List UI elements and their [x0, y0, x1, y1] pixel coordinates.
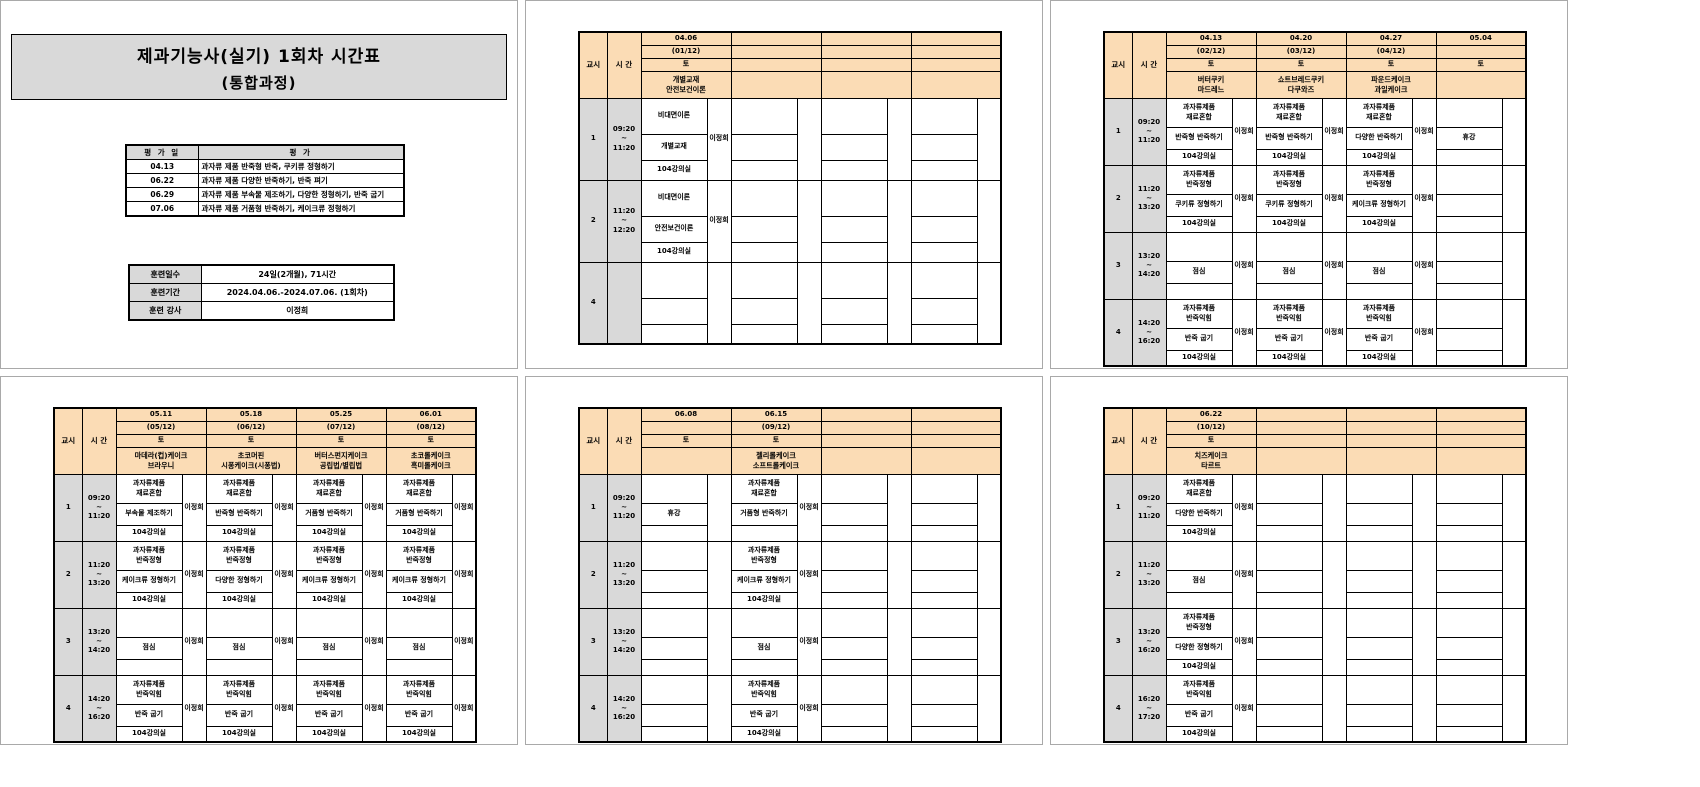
lesson-title-cell [1346, 474, 1412, 503]
instructor-cell [797, 180, 821, 262]
weekday-cell: 토 [1166, 58, 1256, 71]
room-cell [641, 659, 707, 675]
room-cell: 104강의실 [1256, 350, 1322, 366]
instructor-cell [1502, 474, 1526, 541]
subject-cell: 개별교재 안전보건이론 [641, 71, 731, 98]
room-cell [911, 525, 977, 541]
lesson-activity-cell: 반죽 굽기 [1166, 704, 1232, 726]
period-column-header: 교시 [54, 408, 82, 474]
lesson-activity-cell: 다양한 정형하기 [206, 570, 272, 592]
instructor-cell [1502, 165, 1526, 232]
instructor-cell [887, 474, 911, 541]
period-number: 3 [1104, 232, 1132, 299]
lesson-title-cell: 과자류제품 재료혼합 [1256, 98, 1322, 127]
lesson-activity-cell: 반죽 굽기 [296, 704, 362, 726]
date-cell: 05.11 [116, 408, 206, 421]
lesson-activity-cell [911, 134, 977, 160]
lesson-title-cell [1346, 232, 1412, 261]
room-cell [1256, 726, 1322, 742]
period-number: 1 [579, 98, 607, 180]
instructor-cell: 이정희 [452, 474, 476, 541]
lesson-title-cell: 과자류제품 재료혼합 [116, 474, 182, 503]
instructor-cell [887, 180, 911, 262]
instructor-cell: 이정희 [1412, 98, 1436, 165]
lesson-activity-cell [1436, 503, 1502, 525]
lesson-title-cell: 과자류제품 반죽익힘 [1346, 299, 1412, 328]
time-column-header: 시 간 [1132, 32, 1166, 98]
lesson-title-cell [821, 180, 887, 216]
lesson-activity-cell [1346, 570, 1412, 592]
subject-cell: 마데라(컵)케이크 브라우니 [116, 447, 206, 474]
document-title: 제과기능사(실기) 1회차 시간표 [12, 42, 506, 67]
room-cell [821, 324, 887, 344]
room-cell: 104강의실 [1166, 726, 1232, 742]
period-number: 2 [579, 541, 607, 608]
time-range: 13:20 ~ 14:20 [607, 608, 641, 675]
subject-cell [821, 71, 911, 98]
time-range: 09:20 ~ 11:20 [1132, 474, 1166, 541]
lesson-activity-cell: 반죽 굽기 [1346, 328, 1412, 350]
date-cell [1436, 408, 1526, 421]
room-cell [1436, 149, 1502, 165]
lesson-activity-cell: 부속물 제조하기 [116, 503, 182, 525]
instructor-cell: 이정희 [272, 675, 296, 742]
date-cell: 06.22 [1166, 408, 1256, 421]
instructor-cell: 이정희 [272, 541, 296, 608]
lesson-title-cell [1346, 675, 1412, 704]
instructor-cell: 이정희 [452, 541, 476, 608]
instructor-cell: 이정희 [362, 675, 386, 742]
instructor-cell: 이정희 [452, 608, 476, 675]
lesson-activity-cell [911, 298, 977, 324]
subject-cell: 버터스펀지케이크 공립법/별립법 [296, 447, 386, 474]
weekday-cell [1256, 434, 1346, 447]
lesson-title-cell [116, 608, 182, 637]
subject-cell [821, 447, 911, 474]
print-preview-canvas: 제과기능사(실기) 1회차 시간표 (통합과정) 평 가 일평 가04.13과자… [0, 0, 1700, 787]
period-number: 4 [54, 675, 82, 742]
lesson-title-cell: 과자류제품 반죽정형 [1256, 165, 1322, 194]
lesson-activity-cell: 반죽형 반죽하기 [206, 503, 272, 525]
instructor-cell: 이정희 [452, 675, 476, 742]
eval-date: 07.06 [126, 202, 198, 217]
lesson-title-cell [731, 262, 797, 298]
weekday-cell [1346, 434, 1436, 447]
lesson-activity-cell [641, 298, 707, 324]
lesson-title-cell: 비대면이론 [641, 180, 707, 216]
room-cell: 104강의실 [296, 592, 362, 608]
instructor-cell [887, 541, 911, 608]
room-cell [1256, 525, 1322, 541]
instructor-cell [977, 608, 1001, 675]
time-range: 11:20 ~ 13:20 [1132, 165, 1166, 232]
lesson-title-cell [911, 98, 977, 134]
room-cell [1346, 659, 1412, 675]
instructor-cell: 이정희 [1232, 608, 1256, 675]
lesson-activity-cell [1346, 637, 1412, 659]
instructor-cell: 이정희 [362, 474, 386, 541]
eval-content-header: 평 가 [198, 145, 404, 160]
room-cell [1436, 350, 1502, 366]
room-cell [206, 659, 272, 675]
lesson-activity-cell: 다양한 반죽하기 [1166, 503, 1232, 525]
room-cell [641, 525, 707, 541]
eval-content: 과자류 제품 다양한 반죽하기, 반죽 펴기 [198, 174, 404, 188]
lesson-activity-cell: 반죽 굽기 [731, 704, 797, 726]
lesson-activity-cell [821, 704, 887, 726]
subject-cell [1436, 71, 1526, 98]
lesson-activity-cell [1256, 704, 1322, 726]
instructor-cell: 이정희 [707, 180, 731, 262]
instructor-cell [707, 541, 731, 608]
period-number: 3 [579, 608, 607, 675]
lesson-activity-cell [641, 570, 707, 592]
lesson-title-cell [1436, 98, 1502, 127]
lesson-activity-cell: 케이크류 정형하기 [731, 570, 797, 592]
instructor-cell: 이정희 [1412, 165, 1436, 232]
eval-content: 과자류 제품 부속물 제조하기, 다양한 정형하기, 반죽 굽기 [198, 188, 404, 202]
lesson-activity-cell [731, 298, 797, 324]
week-count-cell: (05/12) [116, 421, 206, 434]
weekday-cell [1436, 434, 1526, 447]
instructor-cell [977, 98, 1001, 180]
lesson-title-cell: 과자류제품 반죽익힘 [1256, 299, 1322, 328]
schedule-table: 교시시 간04.1304.2004.2705.04(02/12)(03/12)(… [1103, 31, 1527, 367]
time-range: 13:20 ~ 16:20 [1132, 608, 1166, 675]
room-cell: 104강의실 [296, 525, 362, 541]
lesson-activity-cell: 반죽 굽기 [1256, 328, 1322, 350]
room-cell: 104강의실 [206, 525, 272, 541]
room-cell: 104강의실 [1346, 149, 1412, 165]
time-range: 11:20 ~ 13:20 [1132, 541, 1166, 608]
evaluation-table: 평 가 일평 가04.13과자류 제품 반죽형 반죽, 쿠키류 정형하기06.2… [125, 144, 405, 217]
lesson-title-cell: 과자류제품 재료혼합 [1166, 474, 1232, 503]
room-cell [821, 592, 887, 608]
subject-cell: 젤리롤케이크 소프트롤케이크 [731, 447, 821, 474]
room-cell [821, 242, 887, 262]
week-count-cell: (04/12) [1346, 45, 1436, 58]
week-count-cell [821, 421, 911, 434]
period-number: 2 [1104, 541, 1132, 608]
lesson-title-cell [296, 608, 362, 637]
room-cell: 104강의실 [1346, 350, 1412, 366]
room-cell [1346, 726, 1412, 742]
lesson-title-cell [911, 474, 977, 503]
time-range: 11:20 ~ 13:20 [82, 541, 116, 608]
weekday-cell: 토 [206, 434, 296, 447]
weekday-cell: 토 [1256, 58, 1346, 71]
weekday-cell: 토 [641, 434, 731, 447]
lesson-title-cell: 과자류제품 반죽정형 [296, 541, 362, 570]
lesson-title-cell [1436, 165, 1502, 194]
week-count-cell [641, 421, 731, 434]
lesson-title-cell [821, 541, 887, 570]
instructor-cell: 이정희 [1322, 299, 1346, 366]
instructor-cell [797, 98, 821, 180]
lesson-activity-cell: 점심 [116, 637, 182, 659]
lesson-title-cell [821, 608, 887, 637]
date-cell [731, 32, 821, 45]
instructor-cell [887, 675, 911, 742]
instructor-cell [707, 474, 731, 541]
lesson-title-cell [821, 98, 887, 134]
lesson-activity-cell: 점심 [1166, 261, 1232, 283]
lesson-title-cell [731, 180, 797, 216]
subject-cell [1256, 447, 1346, 474]
instructor-cell: 이정희 [1232, 232, 1256, 299]
room-cell [1436, 659, 1502, 675]
lesson-activity-cell [821, 216, 887, 242]
instructor-cell: 이정희 [272, 608, 296, 675]
instructor-cell [1412, 474, 1436, 541]
time-range: 09:20 ~ 11:20 [82, 474, 116, 541]
schedule-page-2: 교시시 간04.1304.2004.2705.04(02/12)(03/12)(… [1050, 0, 1568, 369]
instructor-cell: 이정희 [1412, 232, 1436, 299]
room-cell: 104강의실 [296, 726, 362, 742]
info-value: 이정희 [201, 302, 394, 321]
room-cell: 104강의실 [1166, 659, 1232, 675]
instructor-cell [977, 675, 1001, 742]
period-number: 1 [1104, 98, 1132, 165]
instructor-cell [1412, 541, 1436, 608]
eval-date: 06.29 [126, 188, 198, 202]
lesson-title-cell [911, 180, 977, 216]
room-cell: 104강의실 [1256, 216, 1322, 232]
instructor-cell: 이정희 [182, 675, 206, 742]
lesson-title-cell: 과자류제품 반죽익힘 [1166, 299, 1232, 328]
date-cell: 05.18 [206, 408, 296, 421]
time-column-header: 시 간 [1132, 408, 1166, 474]
lesson-activity-cell: 점심 [1346, 261, 1412, 283]
instructor-cell [887, 98, 911, 180]
date-cell [821, 32, 911, 45]
room-cell: 104강의실 [116, 726, 182, 742]
weekday-cell [731, 58, 821, 71]
weekday-cell [911, 434, 1001, 447]
room-cell [1346, 592, 1412, 608]
eval-date-header: 평 가 일 [126, 145, 198, 160]
room-cell: 104강의실 [1166, 350, 1232, 366]
week-count-cell [911, 421, 1001, 434]
instructor-cell: 이정희 [1322, 98, 1346, 165]
lesson-activity-cell: 개별교재 [641, 134, 707, 160]
instructor-cell: 이정희 [362, 608, 386, 675]
room-cell [1166, 283, 1232, 299]
instructor-cell [1502, 675, 1526, 742]
lesson-activity-cell: 점심 [1166, 570, 1232, 592]
period-number: 1 [1104, 474, 1132, 541]
room-cell [1346, 525, 1412, 541]
lesson-activity-cell: 점심 [386, 637, 452, 659]
room-cell [911, 324, 977, 344]
lesson-title-cell [911, 541, 977, 570]
lesson-title-cell: 비대면이론 [641, 98, 707, 134]
lesson-title-cell: 과자류제품 재료혼합 [1346, 98, 1412, 127]
room-cell [1256, 592, 1322, 608]
room-cell [1436, 726, 1502, 742]
lesson-title-cell [1256, 232, 1322, 261]
lesson-activity-cell: 다양한 정형하기 [1166, 637, 1232, 659]
lesson-title-cell [641, 675, 707, 704]
room-cell [911, 242, 977, 262]
weekday-cell: 토 [1166, 434, 1256, 447]
lesson-activity-cell: 케이크류 정형하기 [116, 570, 182, 592]
weekday-cell: 토 [641, 58, 731, 71]
lesson-title-cell: 과자류제품 반죽정형 [731, 541, 797, 570]
subject-cell [641, 447, 731, 474]
lesson-title-cell [1436, 232, 1502, 261]
room-cell [1436, 283, 1502, 299]
lesson-activity-cell [1346, 704, 1412, 726]
schedule-page-3: 교시시 간05.1105.1805.2506.01(05/12)(06/12)(… [0, 376, 518, 745]
lesson-title-cell [911, 608, 977, 637]
lesson-title-cell [1346, 608, 1412, 637]
room-cell [1256, 659, 1322, 675]
lesson-activity-cell [911, 503, 977, 525]
weekday-cell: 토 [296, 434, 386, 447]
lesson-activity-cell [821, 134, 887, 160]
period-number: 1 [54, 474, 82, 541]
instructor-cell [1502, 299, 1526, 366]
room-cell [911, 726, 977, 742]
period-number: 2 [579, 180, 607, 262]
time-range: 13:20 ~ 14:20 [82, 608, 116, 675]
subject-cell: 초코롤케이크 흑미롤케이크 [386, 447, 476, 474]
lesson-title-cell [641, 474, 707, 503]
period-column-header: 교시 [579, 408, 607, 474]
instructor-cell [977, 262, 1001, 344]
period-number: 4 [1104, 299, 1132, 366]
time-range: 09:20 ~ 11:20 [607, 474, 641, 541]
room-cell [911, 659, 977, 675]
period-number: 3 [1104, 608, 1132, 675]
date-cell: 05.25 [296, 408, 386, 421]
week-count-cell [1436, 421, 1526, 434]
lesson-activity-cell: 휴강 [641, 503, 707, 525]
room-cell [731, 525, 797, 541]
lesson-activity-cell [911, 216, 977, 242]
lesson-title-cell [821, 262, 887, 298]
lesson-activity-cell [1256, 637, 1322, 659]
lesson-title-cell: 과자류제품 반죽익힘 [731, 675, 797, 704]
subject-cell: 치즈케이크 타르트 [1166, 447, 1256, 474]
date-cell: 04.20 [1256, 32, 1346, 45]
lesson-activity-cell [821, 637, 887, 659]
subject-cell [731, 71, 821, 98]
subject-cell: 파운드케이크 과일케이크 [1346, 71, 1436, 98]
instructor-cell [977, 474, 1001, 541]
lesson-activity-cell [911, 704, 977, 726]
room-cell [1346, 283, 1412, 299]
room-cell [641, 592, 707, 608]
time-range: 14:20 ~ 16:20 [607, 675, 641, 742]
lesson-activity-cell: 거품형 반죽하기 [386, 503, 452, 525]
date-cell [1346, 408, 1436, 421]
week-count-cell [911, 45, 1001, 58]
lesson-activity-cell: 반죽 굽기 [1166, 328, 1232, 350]
room-cell: 104강의실 [116, 525, 182, 541]
room-cell: 104강의실 [386, 592, 452, 608]
period-number: 3 [54, 608, 82, 675]
weekday-cell: 토 [1436, 58, 1526, 71]
lesson-activity-cell: 휴강 [1436, 127, 1502, 149]
time-column-header: 시 간 [607, 408, 641, 474]
lesson-activity-cell [1436, 704, 1502, 726]
room-cell [731, 242, 797, 262]
lesson-title-cell: 과자류제품 재료혼합 [206, 474, 272, 503]
lesson-activity-cell: 케이크류 정형하기 [386, 570, 452, 592]
room-cell: 104강의실 [1256, 149, 1322, 165]
date-cell [1256, 408, 1346, 421]
info-label: 훈련 강사 [129, 302, 201, 321]
room-cell [1436, 525, 1502, 541]
date-cell: 06.08 [641, 408, 731, 421]
weekday-cell [821, 434, 911, 447]
instructor-cell: 이정희 [1232, 165, 1256, 232]
room-cell [821, 726, 887, 742]
lesson-activity-cell: 반죽 굽기 [206, 704, 272, 726]
instructor-cell: 이정희 [1232, 98, 1256, 165]
lesson-title-cell: 과자류제품 재료혼합 [1166, 98, 1232, 127]
room-cell: 104강의실 [1166, 216, 1232, 232]
subject-cell: 쇼트브레드쿠키 다쿠와즈 [1256, 71, 1346, 98]
instructor-cell: 이정희 [272, 474, 296, 541]
week-count-cell [731, 45, 821, 58]
lesson-activity-cell [1436, 637, 1502, 659]
room-cell [731, 160, 797, 180]
room-cell [821, 160, 887, 180]
room-cell: 104강의실 [206, 726, 272, 742]
period-number: 1 [579, 474, 607, 541]
schedule-page-4: 교시시 간06.0806.15(09/12)토토젤리롤케이크 소프트롤케이크10… [525, 376, 1043, 745]
lesson-activity-cell: 반죽형 반죽하기 [1166, 127, 1232, 149]
time-range: 14:20 ~ 16:20 [1132, 299, 1166, 366]
room-cell: 104강의실 [1166, 149, 1232, 165]
lesson-activity-cell: 케이크류 정형하기 [296, 570, 362, 592]
lesson-activity-cell [1256, 570, 1322, 592]
instructor-cell [1412, 675, 1436, 742]
instructor-cell [1322, 474, 1346, 541]
weekday-cell: 토 [731, 434, 821, 447]
instructor-cell [1322, 541, 1346, 608]
lesson-title-cell [641, 541, 707, 570]
weekday-cell [911, 58, 1001, 71]
instructor-cell [1502, 541, 1526, 608]
instructor-cell [1502, 232, 1526, 299]
room-cell: 104강의실 [731, 592, 797, 608]
time-range: 11:20 ~ 12:20 [607, 180, 641, 262]
lesson-title-cell [1436, 541, 1502, 570]
lesson-activity-cell: 안전보건이론 [641, 216, 707, 242]
training-info-table: 훈련일수24일(2개월), 71시간훈련기간2024.04.06.-2024.0… [128, 264, 395, 321]
lesson-title-cell: 과자류제품 반죽정형 [1346, 165, 1412, 194]
subject-cell [911, 71, 1001, 98]
instructor-cell [797, 262, 821, 344]
lesson-title-cell [1256, 675, 1322, 704]
period-number: 4 [579, 675, 607, 742]
lesson-activity-cell [1436, 261, 1502, 283]
period-number: 4 [1104, 675, 1132, 742]
schedule-table: 교시시 간05.1105.1805.2506.01(05/12)(06/12)(… [53, 407, 477, 743]
instructor-cell: 이정희 [1412, 299, 1436, 366]
lesson-title-cell [1256, 541, 1322, 570]
lesson-title-cell [1256, 608, 1322, 637]
info-value: 2024.04.06.-2024.07.06. (1회차) [201, 284, 394, 302]
room-cell [911, 160, 977, 180]
room-cell [731, 659, 797, 675]
lesson-activity-cell [821, 298, 887, 324]
subject-cell: 버터쿠키 마드레느 [1166, 71, 1256, 98]
